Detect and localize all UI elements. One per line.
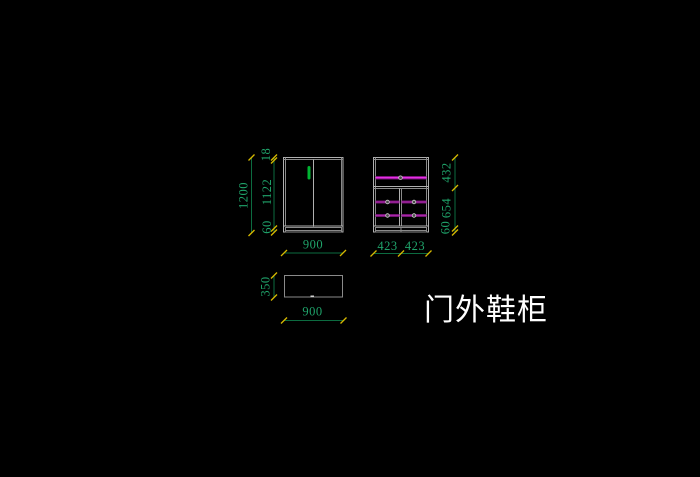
cad-drawing: 1200 18 1122 60 900 432 654 60 423 423 3… [0, 0, 700, 477]
dim-label-door-height: 1122 [260, 179, 274, 206]
dim-label-plan-width: 900 [302, 305, 322, 319]
dim-label-base-height-right: 60 [439, 221, 453, 235]
shelf-pin-icon [399, 176, 403, 180]
plinth-outline [286, 228, 342, 233]
dim-label-upper-section: 432 [440, 162, 454, 182]
shelf-pin-icon [412, 214, 416, 218]
plan-outline [285, 276, 343, 298]
dim-label-overall-height: 1200 [237, 182, 251, 209]
plan-view [285, 276, 343, 298]
shelf-pin-icon [412, 200, 416, 204]
dim-label-lower-section: 654 [440, 198, 454, 219]
door-handle [308, 166, 311, 180]
dim-label-plan-depth: 350 [259, 276, 273, 296]
dim-label-front-width: 900 [303, 238, 323, 252]
dim-label-top-thickness: 18 [259, 148, 273, 162]
plan-center-mark [311, 296, 315, 298]
dim-label-right-bay: 423 [405, 239, 425, 253]
front-elevation-view [284, 158, 344, 233]
cad-drawing-canvas: 1200 18 1122 60 900 432 654 60 423 423 3… [0, 0, 700, 477]
drawing-title: 门外鞋柜 [424, 294, 548, 327]
dimension-labels: 1200 18 1122 60 900 432 654 60 423 423 3… [237, 148, 454, 319]
dim-label-left-bay: 423 [377, 239, 397, 253]
dim-label-base-height: 60 [260, 220, 274, 234]
shelf-pin-icon [386, 200, 390, 204]
shelf-pin-icon [386, 214, 390, 218]
internal-elevation-view [374, 158, 429, 233]
